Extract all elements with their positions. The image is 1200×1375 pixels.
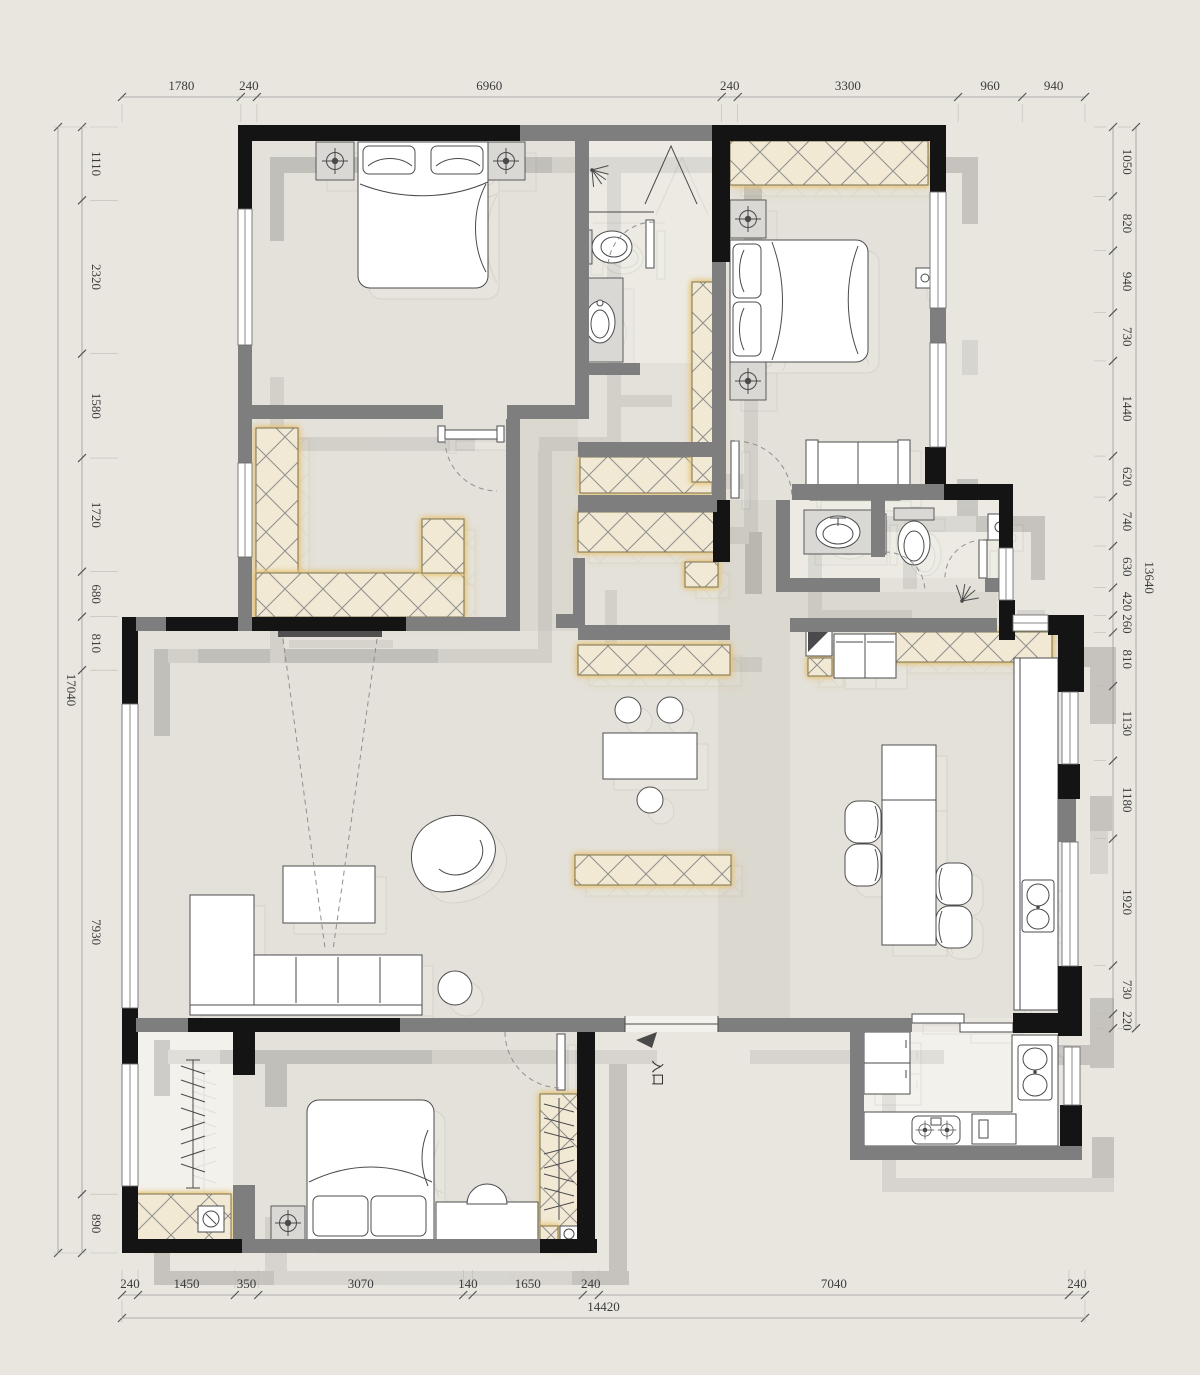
dim-label: 2320 bbox=[89, 264, 104, 290]
dim-label: 260 bbox=[1120, 614, 1135, 634]
dim-label: 350 bbox=[237, 1276, 257, 1291]
dim-label: 3070 bbox=[348, 1276, 374, 1291]
dim-label: 1650 bbox=[515, 1276, 541, 1291]
dim-label: 620 bbox=[1120, 467, 1135, 487]
dim-label: 820 bbox=[1120, 214, 1135, 234]
dim-label: 420 bbox=[1120, 592, 1135, 612]
dim-label: 1130 bbox=[1120, 711, 1135, 737]
dim-label: 240 bbox=[239, 78, 259, 93]
dim-label: 680 bbox=[89, 584, 104, 604]
dim-label: 1450 bbox=[173, 1276, 199, 1291]
dim-label: 810 bbox=[89, 634, 104, 654]
dim-label: 940 bbox=[1120, 272, 1135, 292]
dim-label: 1440 bbox=[1120, 396, 1135, 422]
dim-label: 240 bbox=[1067, 1276, 1087, 1291]
dim-label: 1720 bbox=[89, 502, 104, 528]
dim-label: 1580 bbox=[89, 393, 104, 419]
dim-label: 7040 bbox=[821, 1276, 847, 1291]
dim-label: 1780 bbox=[168, 78, 194, 93]
dim-label: 730 bbox=[1120, 327, 1135, 347]
dim-label: 13640 bbox=[1142, 561, 1157, 594]
dim-label: 730 bbox=[1120, 980, 1135, 1000]
dim-label: 1050 bbox=[1120, 149, 1135, 175]
dim-label: 6960 bbox=[476, 78, 502, 93]
dim-label: 940 bbox=[1044, 78, 1064, 93]
dim-label: 1920 bbox=[1120, 889, 1135, 915]
dim-label: 240 bbox=[120, 1276, 140, 1291]
entry-label: 入口 bbox=[650, 1060, 665, 1086]
dim-label: 960 bbox=[980, 78, 1000, 93]
dim-label: 810 bbox=[1120, 650, 1135, 670]
dim-label: 630 bbox=[1120, 557, 1135, 577]
dim-label: 240 bbox=[581, 1276, 601, 1291]
dim-label: 3300 bbox=[835, 78, 861, 93]
dim-label: 220 bbox=[1120, 1011, 1135, 1031]
dim-label: 7930 bbox=[89, 919, 104, 945]
dim-label: 1180 bbox=[1120, 787, 1135, 813]
dim-label: 14420 bbox=[587, 1299, 620, 1314]
dim-label: 1110 bbox=[89, 151, 104, 176]
dim-label: 740 bbox=[1120, 512, 1135, 532]
floor-plan-page: 入口 1780240696024033009609402401450350307… bbox=[0, 0, 1200, 1375]
dim-label: 240 bbox=[720, 78, 740, 93]
dim-label: 140 bbox=[458, 1276, 478, 1291]
dim-label: 890 bbox=[89, 1214, 104, 1234]
floor-plan-canvas: 入口 1780240696024033009609402401450350307… bbox=[0, 0, 1200, 1375]
dim-label: 17040 bbox=[64, 674, 79, 707]
